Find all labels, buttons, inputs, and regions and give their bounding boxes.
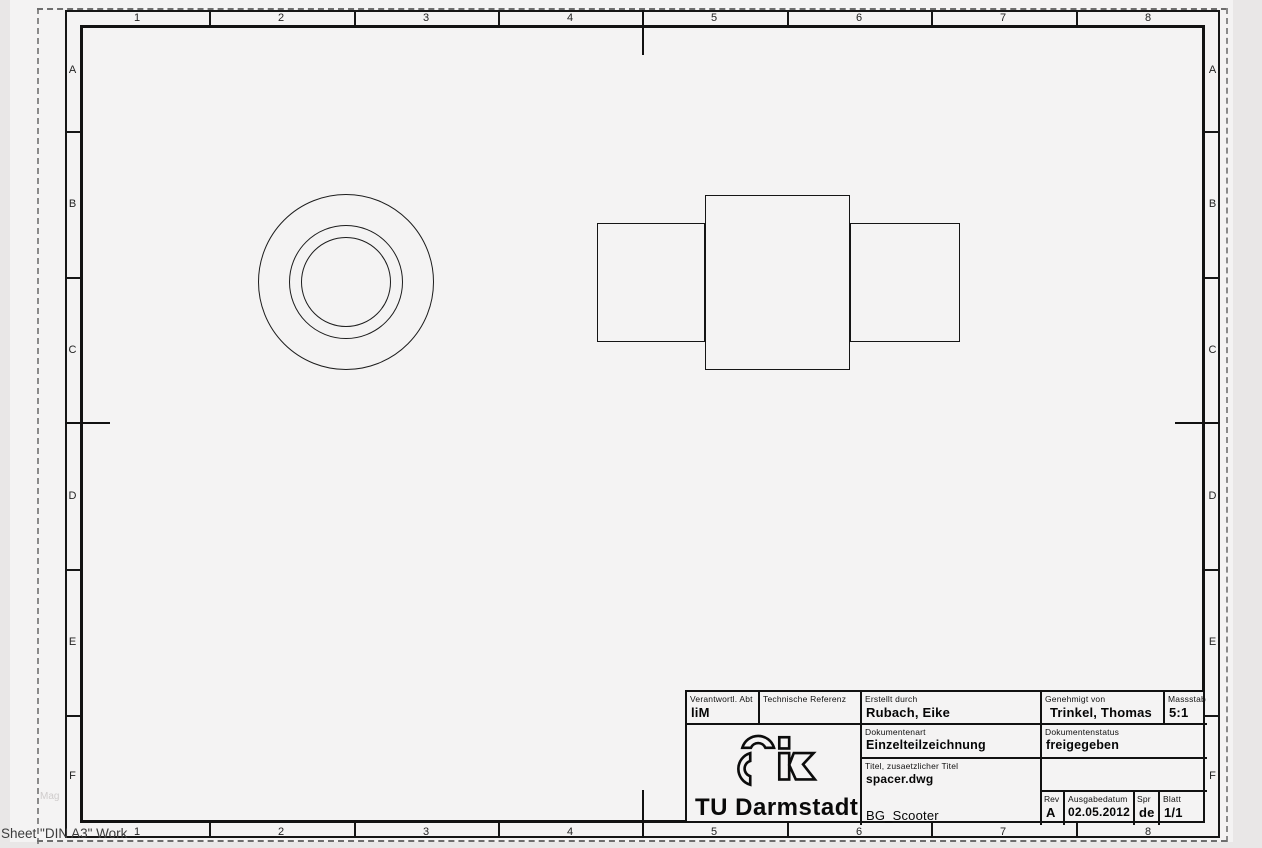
- cell-label: Blatt: [1160, 792, 1207, 804]
- title-block: Verantwortl. Abt liM Technische Referenz…: [685, 690, 1205, 823]
- cell-sprache: Spr de: [1135, 792, 1160, 825]
- cell-value: [760, 704, 860, 705]
- cell-value: A: [1042, 804, 1063, 820]
- cell-label: Ausgabedatum: [1065, 792, 1133, 804]
- cell-value: liM: [687, 704, 758, 720]
- cell-label: Dokumentenstatus: [1042, 725, 1207, 737]
- cell-value: 1/1: [1160, 804, 1207, 820]
- cell-value: Einzelteilzeichnung: [862, 737, 1040, 752]
- cell-blatt: Blatt 1/1: [1160, 792, 1207, 825]
- cell-rev: Rev A: [1042, 792, 1065, 825]
- cell-technische-referenz: Technische Referenz: [760, 692, 862, 725]
- cell-label: Spr: [1135, 792, 1158, 804]
- cad-canvas: 1 2 3 4 5 6 7 8 1 2 3 4 5 6 7 8 A B C D …: [0, 0, 1262, 848]
- cell-value: Rubach, Eike: [862, 704, 1040, 720]
- cell-value: 02.05.2012: [1065, 804, 1133, 819]
- cell-label: Erstellt durch: [862, 692, 1040, 704]
- side-view-rect[interactable]: [597, 223, 705, 342]
- cell-project-value: BG_Scooter: [862, 807, 939, 823]
- cell-value: spacer.dwg: [862, 771, 1040, 786]
- cell-label: Technische Referenz: [760, 692, 860, 704]
- cell-value: 5:1: [1165, 704, 1207, 720]
- faint-artifact-text: Mag: [40, 791, 59, 802]
- side-view-rect[interactable]: [705, 195, 850, 370]
- cell-logo: TU Darmstadt: [687, 725, 862, 825]
- tu-darmstadt-logo-icon: [719, 728, 829, 794]
- cell-label: Genehmigt von: [1042, 692, 1163, 704]
- cell-titel: Titel, zusaetzlicher Titel spacer.dwg BG…: [862, 759, 1042, 825]
- cell-label: Dokumentenart: [862, 725, 1040, 737]
- cell-dokumentenstatus: Dokumentenstatus freigegeben: [1042, 725, 1207, 759]
- side-view-rect[interactable]: [850, 223, 960, 342]
- logo-text: TU Darmstadt: [695, 794, 858, 822]
- sheet-tab-label[interactable]: Sheet "DIN A3" Work: [1, 826, 127, 841]
- cell-value: de: [1135, 804, 1158, 820]
- cell-label: Rev: [1042, 792, 1063, 804]
- cell-verantwortl-abt: Verantwortl. Abt liM: [687, 692, 760, 725]
- cell-ausgabedatum: Ausgabedatum 02.05.2012: [1065, 792, 1135, 825]
- cell-empty: [1042, 759, 1207, 792]
- cell-value: freigegeben: [1042, 737, 1207, 752]
- cell-label: Verantwortl. Abt: [687, 692, 758, 704]
- cell-dokumentenart: Dokumentenart Einzelteilzeichnung: [862, 725, 1042, 759]
- paper-boundary-dash-bottom: [37, 840, 1227, 842]
- cell-value: Trinkel, Thomas: [1042, 704, 1163, 720]
- cell-label: Massstab: [1165, 692, 1207, 704]
- front-view-circle[interactable]: [301, 237, 391, 327]
- cell-massstab: Massstab 5:1: [1165, 692, 1207, 725]
- cell-erstellt-durch: Erstellt durch Rubach, Eike: [862, 692, 1042, 725]
- cell-label: Titel, zusaetzlicher Titel: [862, 759, 1040, 771]
- cell-genehmigt-von: Genehmigt von Trinkel, Thomas: [1042, 692, 1165, 725]
